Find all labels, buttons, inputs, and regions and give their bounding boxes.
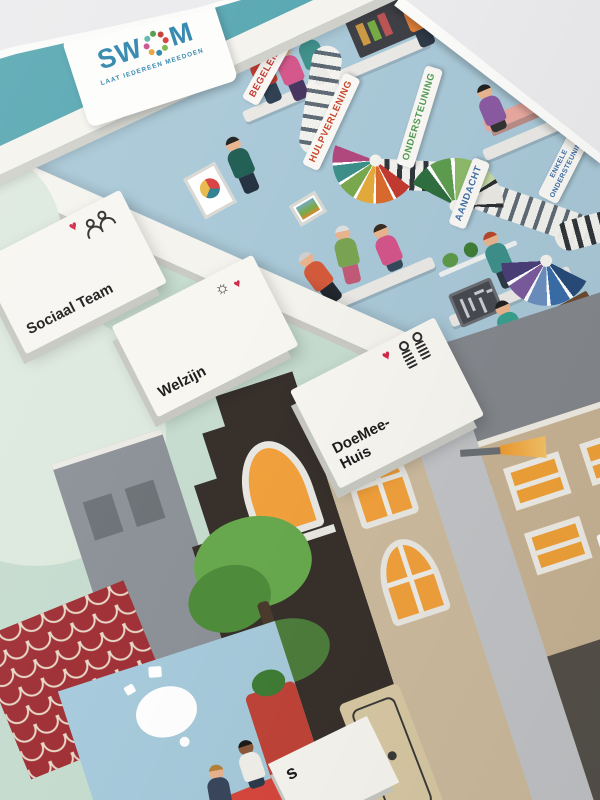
street-lamp [459,432,542,477]
puzzle-piece [148,666,162,678]
puzzle-piece [123,683,136,696]
arched-window [369,531,451,628]
window [125,480,166,527]
lamp-arm [460,447,502,457]
storefront-frame [596,498,600,605]
person-illustration [202,763,236,800]
window [524,516,593,576]
window [579,426,600,486]
lamp-light-cone [499,436,546,461]
thought-bubble-dot [178,735,191,748]
thought-bubble [129,679,203,746]
photo-of-poster: BEGELEIDING HULPVERLENING ONDERSTEUNING … [0,0,600,800]
partial-card-letter: s [282,761,301,785]
card-title: Welzijn [155,362,209,401]
pie-chart-illustration [196,175,223,202]
window [83,493,124,540]
